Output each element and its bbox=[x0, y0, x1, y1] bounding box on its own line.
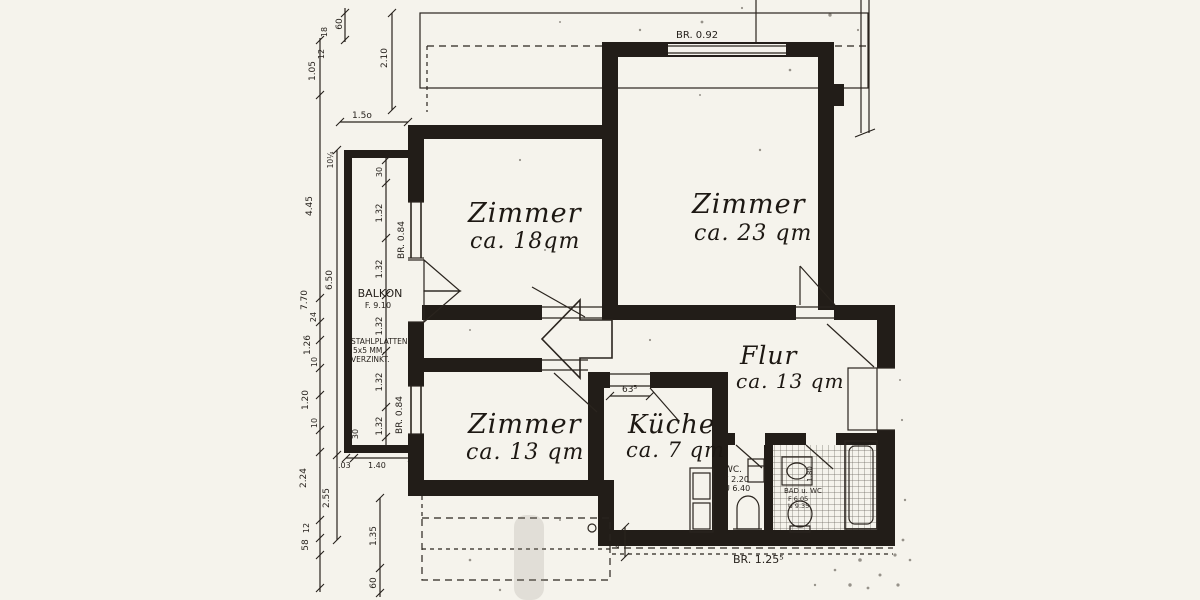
room-label-zimmer13: Zimmer bbox=[467, 409, 583, 440]
dim-60-top: 60 bbox=[335, 18, 345, 30]
wall-neck-bottom bbox=[422, 358, 542, 372]
dim-210: 2.10 bbox=[380, 48, 390, 68]
dim-650: 6.50 bbox=[325, 270, 335, 290]
dim-bal-132a: 1.32 bbox=[375, 204, 385, 223]
toilet-wc bbox=[737, 496, 759, 529]
dim-18: 18 bbox=[320, 27, 329, 37]
dim-40: 40 bbox=[613, 538, 622, 548]
dim-224: 2.24 bbox=[299, 468, 309, 488]
dim-126: 1.26 bbox=[303, 335, 313, 355]
direction-arrow bbox=[542, 300, 612, 378]
room-area-zimmer23: ca. 23 qm bbox=[694, 221, 812, 246]
wall-neck-top bbox=[422, 305, 542, 320]
wall-left-upper bbox=[408, 125, 424, 202]
balcony-note-1: STAHLPLATTEN, bbox=[351, 337, 410, 346]
dim-bal-03: .03 bbox=[338, 461, 351, 470]
dim-bal-30a: 30 bbox=[375, 167, 384, 177]
roof-dashed-outline bbox=[420, 0, 875, 137]
bad-label: BAD u. WC bbox=[784, 487, 822, 495]
dim-bal-132b: 1.32 bbox=[375, 260, 385, 279]
room-area-zimmer13: ca. 13 qm bbox=[466, 440, 584, 465]
dim-bal-140: 1.40 bbox=[368, 461, 386, 470]
dim-10q: 10¼ bbox=[326, 151, 335, 169]
scan-smudge bbox=[514, 515, 544, 600]
parapet-balcony-upper: BR. 0.84 bbox=[397, 221, 407, 259]
door-leaf-entrance bbox=[827, 324, 874, 367]
room-area-flur: ca. 13 qm bbox=[736, 369, 844, 393]
balcony-area: F. 9.10 bbox=[365, 301, 391, 310]
dim-150: 1.5o bbox=[352, 111, 372, 121]
dim-255: 2.55 bbox=[322, 488, 332, 508]
dim-445: 4.45 bbox=[305, 196, 315, 216]
bad-perimeter: U 9.35 bbox=[788, 502, 809, 510]
entrance-niche bbox=[848, 368, 877, 430]
dim-bal-132c: 1.32 bbox=[375, 317, 385, 336]
room-label-flur: Flur bbox=[739, 341, 798, 370]
dim-bal-30b: 30 bbox=[351, 429, 360, 439]
dim-10a: 10 bbox=[310, 357, 319, 367]
wall-zimmer23-flur-right bbox=[834, 305, 895, 320]
wall-bottom-zimmer13 bbox=[408, 480, 614, 496]
wall-zimmer13-kueche bbox=[588, 372, 604, 496]
wall-left-middle bbox=[408, 322, 424, 386]
dim-10b: 10 bbox=[310, 418, 319, 428]
dim-58: 58 bbox=[301, 539, 311, 551]
balcony-note-3: VERZINKT. bbox=[351, 355, 389, 364]
dim-24: 24 bbox=[309, 312, 318, 322]
wc-area: F 2.20 bbox=[724, 475, 749, 484]
wall-zimmer23-flur-left bbox=[602, 305, 796, 320]
wall-bad-top bbox=[836, 433, 877, 445]
dim-770: 7.70 bbox=[300, 290, 310, 310]
dim-bal-132d: 1.32 bbox=[375, 373, 385, 392]
dim-12b: 12 bbox=[302, 523, 311, 533]
wall-wc-top-b bbox=[765, 433, 806, 445]
labels: Zimmer ca. 18qm Zimmer ca. 23 qm Zimmer … bbox=[299, 18, 844, 589]
wall-bottom-right bbox=[598, 530, 895, 546]
floorplan-svg: Zimmer ca. 18qm Zimmer ca. 23 qm Zimmer … bbox=[0, 0, 1200, 600]
dim-bal-5: 5 bbox=[385, 150, 393, 154]
dim-120: 1.20 bbox=[301, 390, 311, 410]
wall-between-zimmer18-23 bbox=[602, 42, 618, 320]
wc-perimeter: U 6.40 bbox=[724, 484, 750, 493]
parapet-bottom: BR. 1.25⁵ bbox=[733, 553, 784, 566]
wall-right-zimmer23 bbox=[818, 42, 834, 310]
wall-right-lower bbox=[877, 430, 895, 530]
balcony-note-2: 5x5 MM, bbox=[353, 346, 385, 355]
wall-wc-bad bbox=[764, 445, 773, 530]
room-label-zimmer23: Zimmer bbox=[691, 189, 807, 220]
wall-right-upper bbox=[877, 320, 895, 368]
kitchen-door-width: 63⁵ bbox=[622, 385, 637, 395]
room-area-kueche: ca. 7 qm bbox=[626, 438, 725, 462]
dim-105: 1.05 bbox=[308, 61, 318, 81]
wall-top-zimmer18 bbox=[408, 125, 614, 139]
parapet-balcony-lower: BR. 0.84 bbox=[395, 396, 405, 434]
room-label-zimmer18: Zimmer bbox=[467, 198, 583, 229]
bad-dim: 1.80 bbox=[806, 466, 814, 482]
floorplan-scan: Zimmer ca. 18qm Zimmer ca. 23 qm Zimmer … bbox=[0, 0, 1200, 600]
parapet-top: BR. 0.92 bbox=[676, 30, 718, 41]
wall-bump bbox=[834, 84, 844, 106]
dim-bal-132e: 1.32 bbox=[375, 417, 385, 436]
dim-135: 1.35 bbox=[369, 526, 379, 546]
door-swing-balcony-upper bbox=[424, 260, 460, 291]
wall-wc-top-a bbox=[728, 433, 735, 445]
room-area-zimmer18: ca. 18qm bbox=[470, 229, 580, 254]
dim-60b: 60 bbox=[369, 577, 379, 589]
room-label-kueche: Küche bbox=[627, 410, 715, 440]
balcony-label: BALKON bbox=[358, 287, 403, 300]
wc-label: WC. bbox=[724, 465, 742, 475]
dim-12: 12 bbox=[317, 49, 326, 59]
